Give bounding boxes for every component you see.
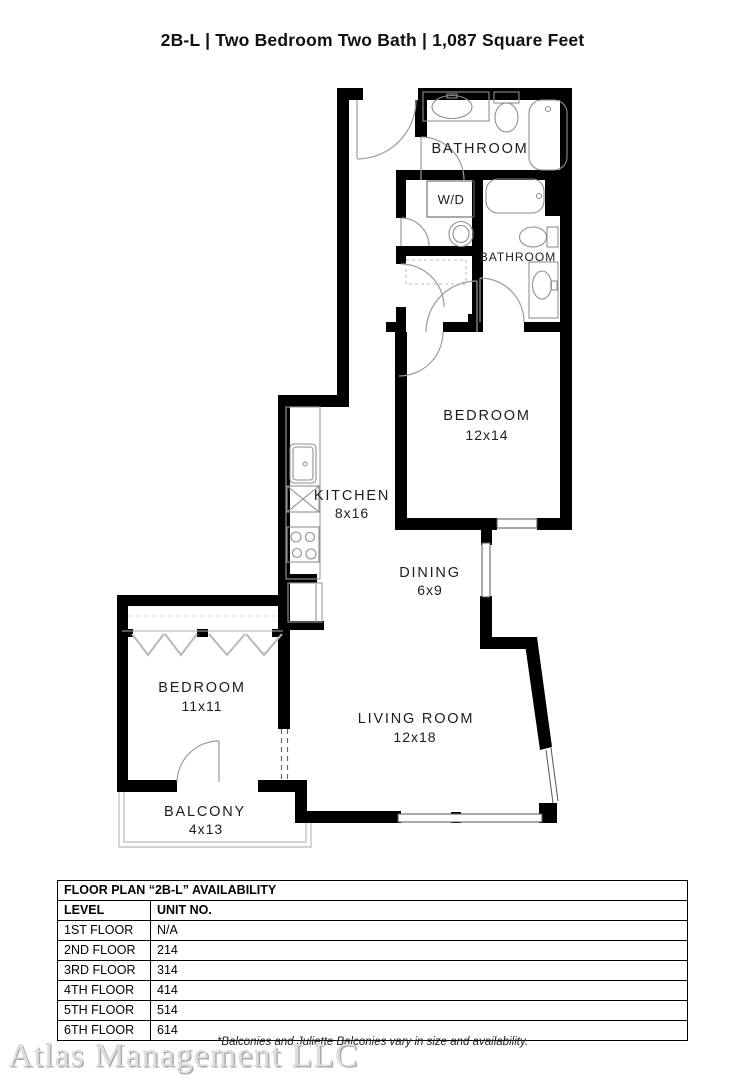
room-label-bathroom-upper: BATHROOM [431, 141, 528, 157]
pedestal-sink-icon [529, 262, 558, 318]
cased-opening [282, 729, 288, 780]
window-bedroom-main [497, 519, 537, 528]
level-cell: 3RD FLOOR [58, 961, 151, 981]
table-row: 5TH FLOOR 514 [58, 1001, 688, 1021]
col-header-unit: UNIT NO. [151, 901, 688, 921]
unit-cell: 514 [151, 1001, 688, 1021]
room-dims-balcony: 4x13 [189, 821, 223, 837]
room-label-dining: DINING [399, 565, 461, 581]
entry-door [357, 100, 416, 159]
table-row: 2ND FLOOR 214 [58, 941, 688, 961]
room-labels: BATHROOM W/D BATHROOM BEDROOM 12x14 KITC… [158, 141, 556, 837]
table-row: 1ST FLOOR N/A [58, 921, 688, 941]
toilet2-icon [520, 227, 559, 247]
pantry-cabinet [288, 583, 322, 622]
closet-shelf-dashed [406, 260, 466, 284]
room-label-bedroom-main: BEDROOM [443, 408, 531, 424]
table-row: 4TH FLOOR 414 [58, 981, 688, 1001]
table-header-row: LEVEL UNIT NO. [58, 901, 688, 921]
window-dining [482, 543, 490, 597]
floor-plan-page: 2B-L | Two Bedroom Two Bath | 1,087 Squa… [0, 0, 745, 1080]
balcony-door [177, 741, 219, 782]
room-label-living-room: LIVING ROOM [358, 711, 474, 727]
room-dims-kitchen: 8x16 [335, 505, 369, 521]
level-cell: 1ST FLOOR [58, 921, 151, 941]
room-label-kitchen: KITCHEN [314, 488, 390, 504]
col-header-level: LEVEL [58, 901, 151, 921]
availability-table: FLOOR PLAN “2B-L” AVAILABILITY LEVEL UNI… [57, 880, 688, 1041]
toilet-wc-icon [449, 222, 473, 247]
room-dims-living-room: 12x18 [393, 729, 436, 745]
bathroom-lower-door [480, 278, 524, 322]
room-label-bathroom-lower: BATHROOM [480, 250, 556, 264]
level-cell: 4TH FLOOR [58, 981, 151, 1001]
room-label-washer-dryer: W/D [438, 192, 465, 207]
unit-cell: 214 [151, 941, 688, 961]
unit-cell: 314 [151, 961, 688, 981]
unit-cell: N/A [151, 921, 688, 941]
bathtub2-icon [486, 179, 544, 213]
room-label-bedroom-second: BEDROOM [158, 680, 246, 696]
unit-cell: 414 [151, 981, 688, 1001]
room-dims-dining: 6x9 [417, 582, 443, 598]
floor-plan-drawing: BATHROOM W/D BATHROOM BEDROOM 12x14 KITC… [0, 0, 745, 860]
level-cell: 2ND FLOOR [58, 941, 151, 961]
table-title: FLOOR PLAN “2B-L” AVAILABILITY [58, 881, 688, 901]
room-dims-bedroom-main: 12x14 [465, 427, 508, 443]
room-dims-bedroom-second: 11x11 [181, 698, 222, 714]
wc-door [401, 218, 429, 246]
level-cell: 5TH FLOOR [58, 1001, 151, 1021]
company-watermark: Atlas Management LLC [8, 1037, 358, 1075]
window-living [398, 814, 542, 822]
table-title-row: FLOOR PLAN “2B-L” AVAILABILITY [58, 881, 688, 901]
table-row: 3RD FLOOR 314 [58, 961, 688, 981]
room-label-balcony: BALCONY [164, 804, 246, 820]
kitchen-sink-icon [290, 444, 316, 483]
stove-icon [287, 527, 319, 562]
